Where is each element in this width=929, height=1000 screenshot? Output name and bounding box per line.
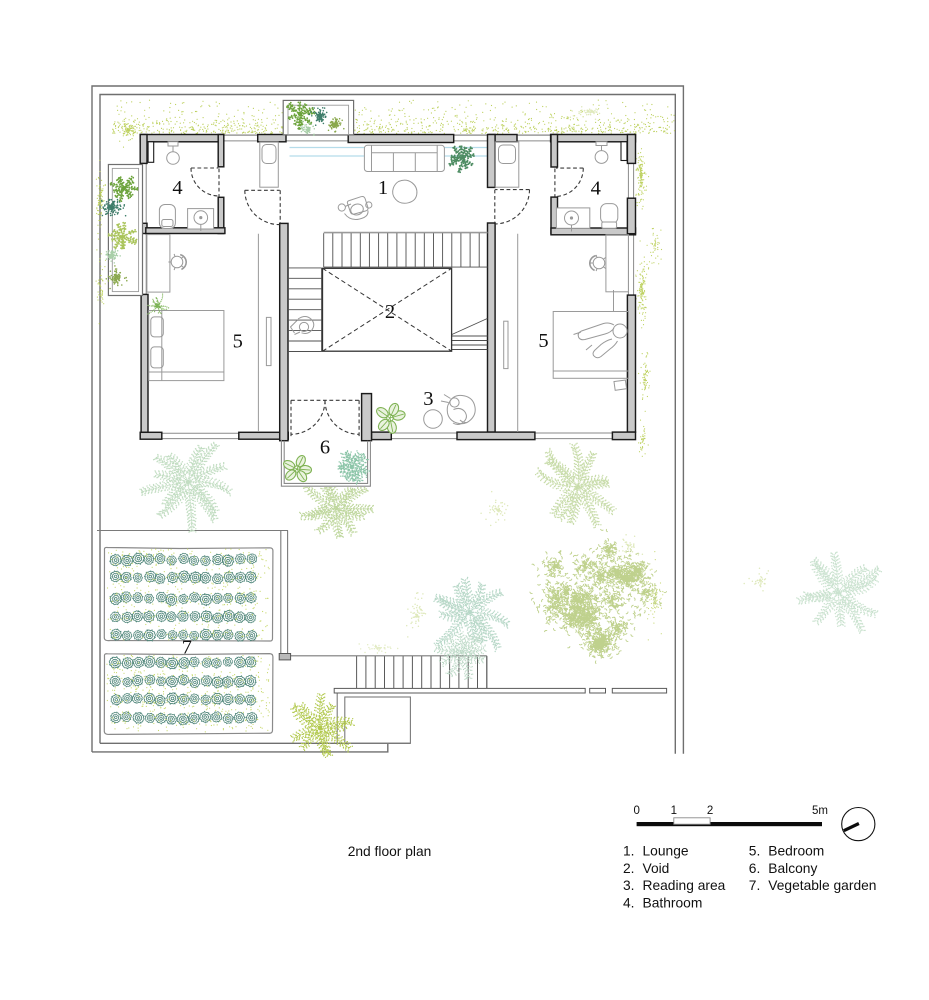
svg-text:7.: 7. [749,878,761,893]
svg-text:Lounge: Lounge [643,844,689,859]
svg-text:5: 5 [538,330,548,352]
svg-text:Reading area: Reading area [643,878,726,893]
svg-text:Balcony: Balcony [768,861,817,876]
svg-text:2: 2 [707,805,713,817]
svg-text:Bathroom: Bathroom [643,895,703,910]
svg-text:6.: 6. [749,861,761,876]
svg-text:Bedroom: Bedroom [768,844,824,859]
svg-text:3: 3 [423,388,433,410]
svg-text:Vegetable garden: Vegetable garden [768,878,876,893]
svg-text:7: 7 [182,637,192,659]
svg-text:Void: Void [643,861,670,876]
svg-text:2.: 2. [623,861,635,876]
svg-text:1: 1 [671,805,677,817]
svg-text:4: 4 [591,178,601,200]
svg-text:4: 4 [172,177,182,199]
svg-text:0: 0 [633,805,639,817]
svg-text:5.: 5. [749,844,761,859]
svg-text:4.: 4. [623,895,635,910]
svg-text:6: 6 [320,437,330,459]
svg-text:5: 5 [233,331,243,353]
svg-text:1: 1 [378,177,388,199]
svg-text:2: 2 [385,301,395,323]
svg-text:5m: 5m [812,805,828,817]
svg-text:3.: 3. [623,878,635,893]
svg-text:2nd floor plan: 2nd floor plan [348,844,432,859]
svg-text:1.: 1. [623,844,635,859]
